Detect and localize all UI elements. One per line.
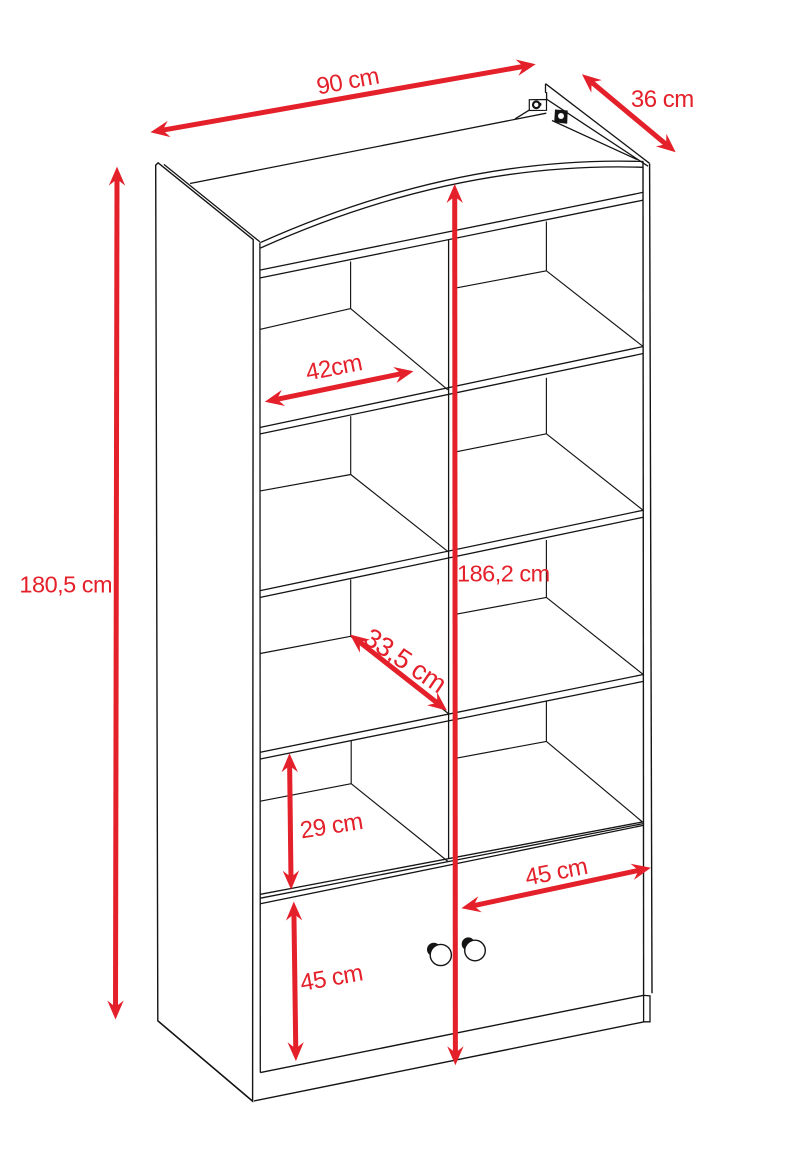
svg-text:180,5 cm: 180,5 cm: [19, 572, 112, 598]
svg-text:186,2 cm: 186,2 cm: [457, 561, 550, 587]
svg-text:36 cm: 36 cm: [631, 86, 694, 113]
